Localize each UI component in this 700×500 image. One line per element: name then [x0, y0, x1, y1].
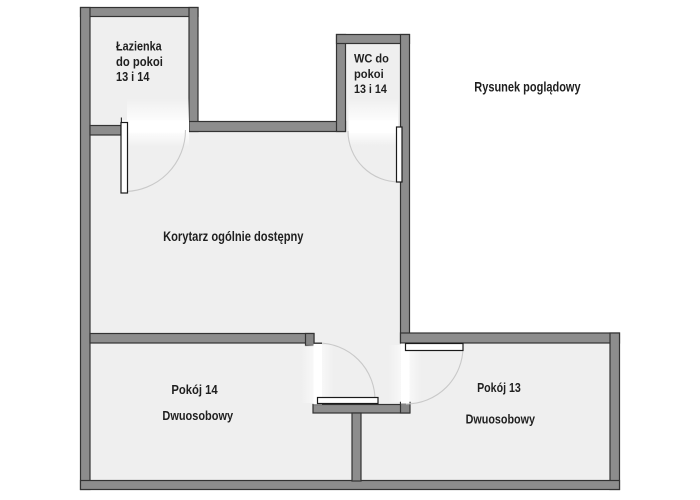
svg-text:WC do: WC do [354, 52, 389, 66]
svg-text:pokoi: pokoi [354, 67, 384, 81]
svg-text:Rysunek poglądowy: Rysunek poglądowy [474, 78, 580, 94]
svg-text:do pokoi: do pokoi [116, 54, 163, 69]
svg-text:Pokój 13: Pokój 13 [477, 380, 521, 395]
svg-text:Łazienka: Łazienka [116, 39, 162, 54]
svg-text:Dwuosobowy: Dwuosobowy [162, 408, 233, 423]
svg-text:13 i 14: 13 i 14 [116, 69, 150, 84]
svg-text:Pokój 14: Pokój 14 [171, 382, 218, 397]
svg-text:Korytarz ogólnie dostępny: Korytarz ogólnie dostępny [163, 229, 304, 244]
svg-text:Dwuosobowy: Dwuosobowy [466, 412, 536, 427]
svg-text:13 i 14: 13 i 14 [354, 82, 387, 96]
